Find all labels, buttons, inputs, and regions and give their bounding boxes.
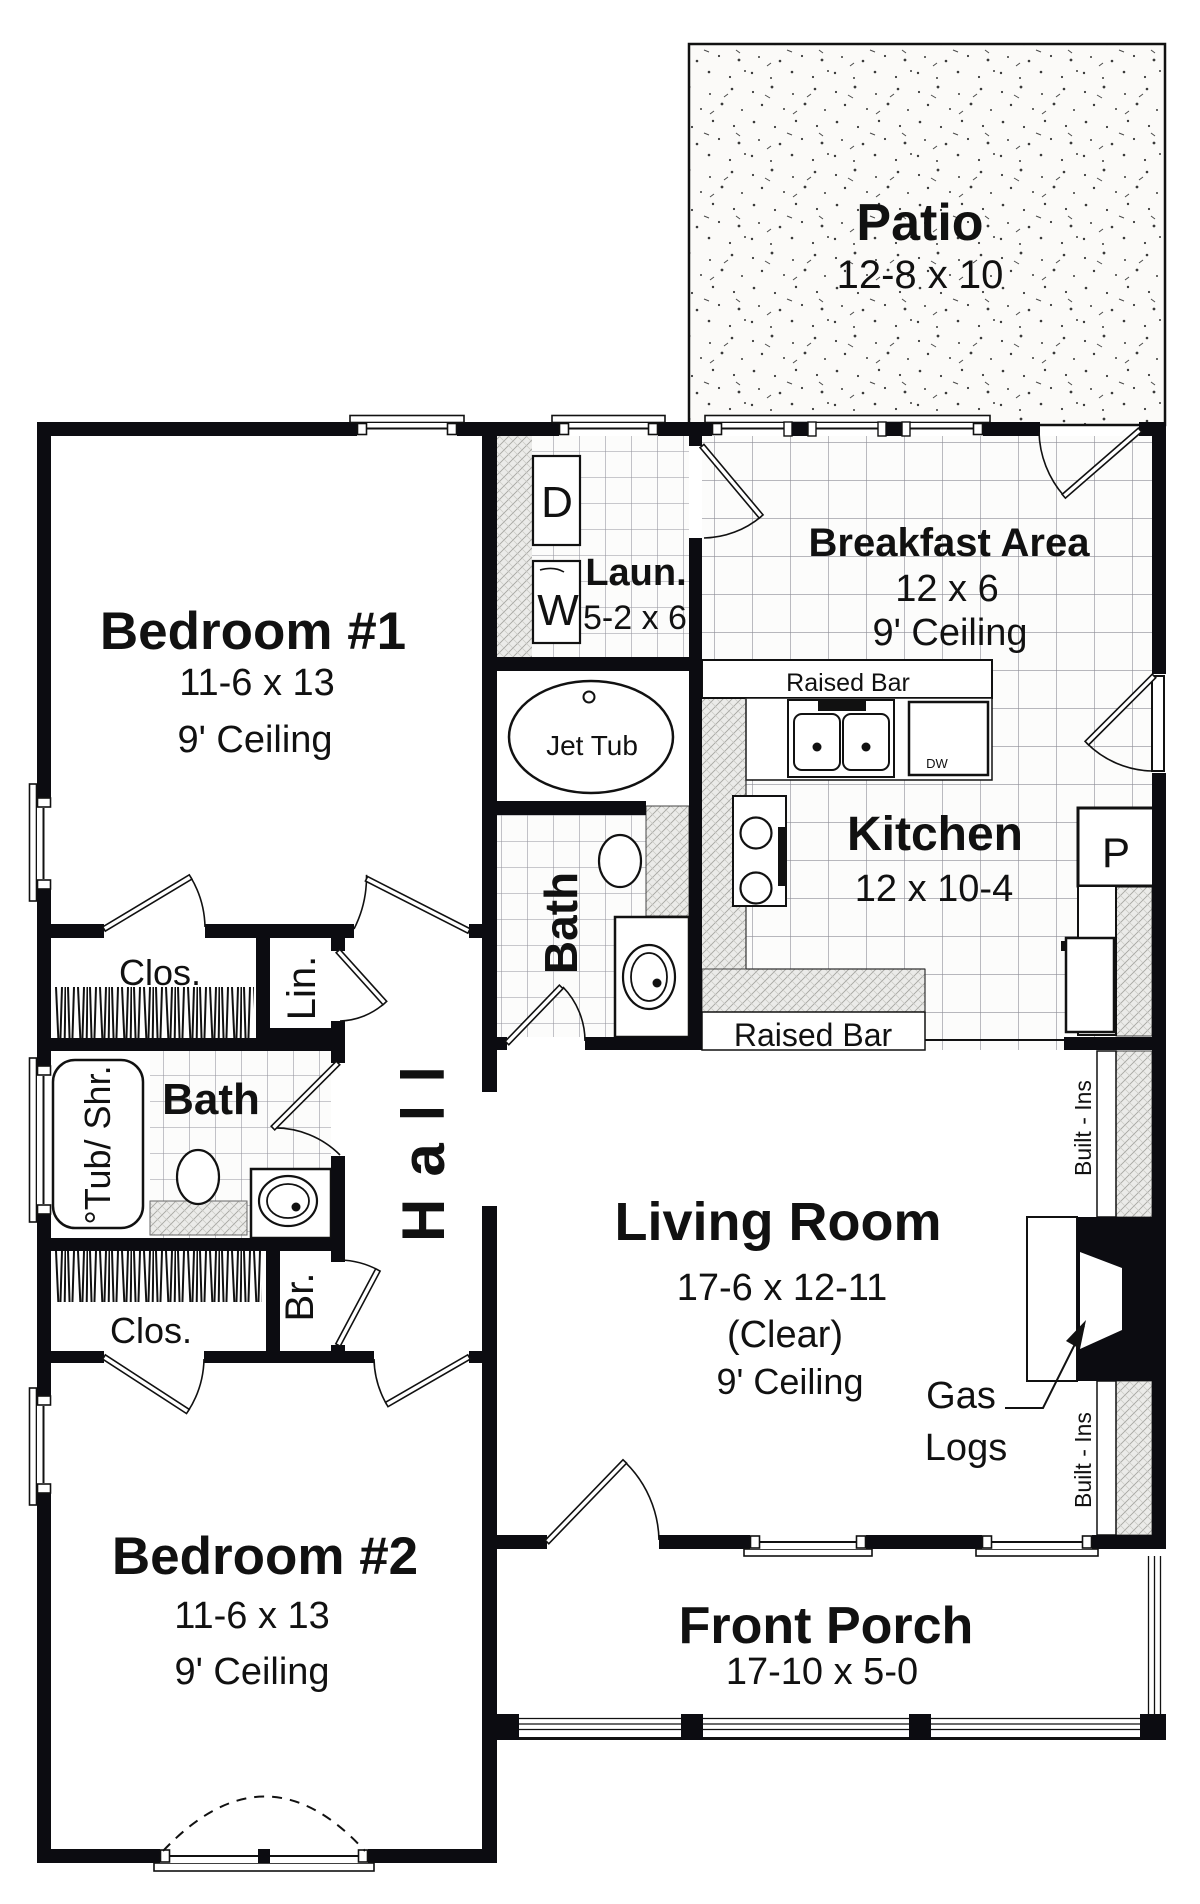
svg-text:Clos.: Clos. [110,1310,192,1351]
svg-text:Bedroom #1: Bedroom #1 [100,602,406,661]
svg-text:Raised Bar: Raised Bar [786,669,910,697]
svg-text:Kitchen: Kitchen [847,808,1023,861]
svg-text:17-10 x 5-0: 17-10 x 5-0 [726,1651,918,1693]
svg-text:Raised Bar: Raised Bar [734,1017,893,1053]
svg-text:Br.: Br. [278,1273,322,1322]
svg-text:Built - Ins: Built - Ins [1070,1412,1096,1508]
svg-text:Breakfast Area: Breakfast Area [809,521,1091,565]
svg-text:D: D [541,478,573,527]
svg-text:Laun.: Laun. [585,552,686,594]
svg-text:Jet Tub: Jet Tub [546,730,638,761]
svg-text:Bath: Bath [162,1075,260,1124]
svg-text:Hall: Hall [390,1044,457,1242]
svg-text:9' Ceiling: 9' Ceiling [717,1361,864,1402]
svg-text:(Clear): (Clear) [727,1314,843,1356]
svg-text:°Tub/ Shr.: °Tub/ Shr. [77,1065,118,1224]
svg-text:Gas: Gas [926,1375,996,1417]
svg-text:17-6 x 12-11: 17-6 x 12-11 [677,1267,888,1309]
svg-text:12 x 6: 12 x 6 [895,568,999,610]
svg-text:DW: DW [926,756,948,771]
svg-text:12 x 10-4: 12 x 10-4 [855,868,1013,910]
svg-text:Bedroom #2: Bedroom #2 [112,1527,418,1586]
svg-text:Lin.: Lin. [280,956,324,1021]
svg-text:9' Ceiling: 9' Ceiling [174,1651,329,1693]
svg-text:Bath: Bath [535,872,587,974]
svg-text:P: P [1102,829,1130,876]
svg-text:11-6 x 13: 11-6 x 13 [174,1595,330,1637]
svg-text:9' Ceiling: 9' Ceiling [177,719,332,761]
svg-text:Clos.: Clos. [119,952,201,993]
svg-text:W: W [537,586,579,635]
svg-text:5-2 x 6: 5-2 x 6 [583,599,687,637]
svg-text:Logs: Logs [925,1427,1007,1469]
svg-text:Front Porch: Front Porch [679,1597,974,1655]
svg-text:9' Ceiling: 9' Ceiling [872,612,1027,654]
svg-text:Living Room: Living Room [615,1192,942,1252]
svg-text:12-8 x 10: 12-8 x 10 [837,253,1004,297]
svg-text:Patio: Patio [856,194,983,252]
svg-text:11-6 x 13: 11-6 x 13 [179,662,335,704]
svg-text:Built - Ins: Built - Ins [1070,1080,1096,1176]
